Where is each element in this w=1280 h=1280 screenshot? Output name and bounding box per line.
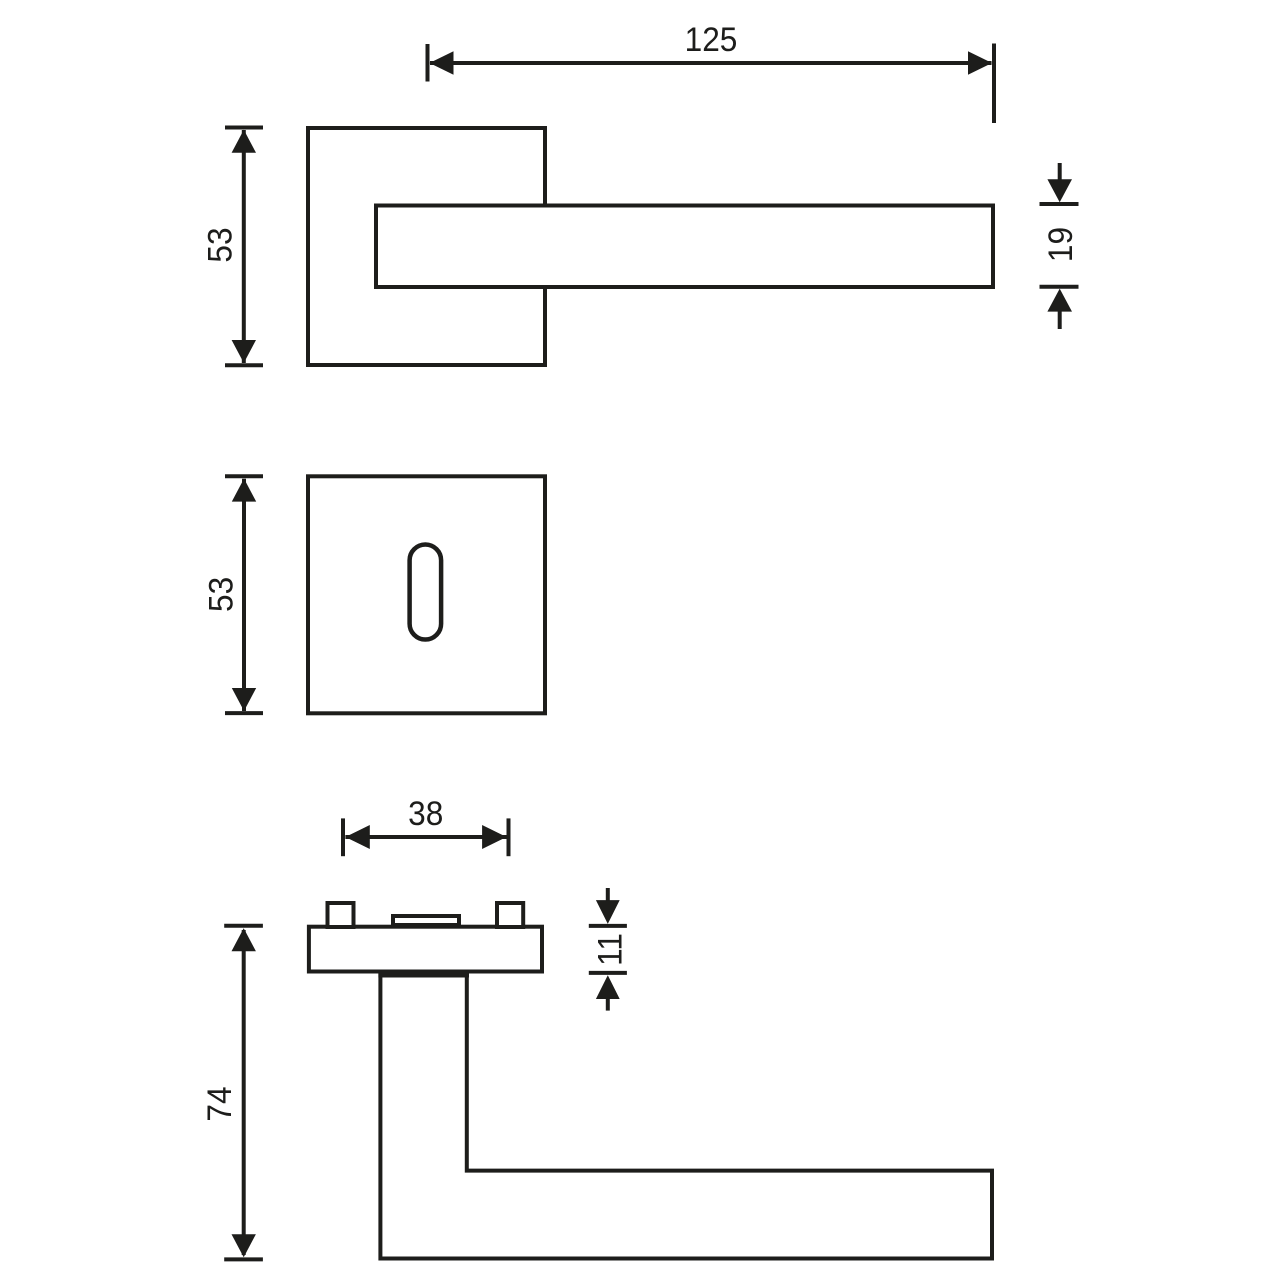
svg-text:53: 53 [200,227,238,262]
svg-text:125: 125 [685,20,738,58]
svg-text:74: 74 [200,1086,238,1121]
svg-text:11: 11 [590,933,628,966]
svg-text:53: 53 [201,577,239,612]
svg-text:38: 38 [408,794,443,832]
svg-text:19: 19 [1041,227,1079,262]
